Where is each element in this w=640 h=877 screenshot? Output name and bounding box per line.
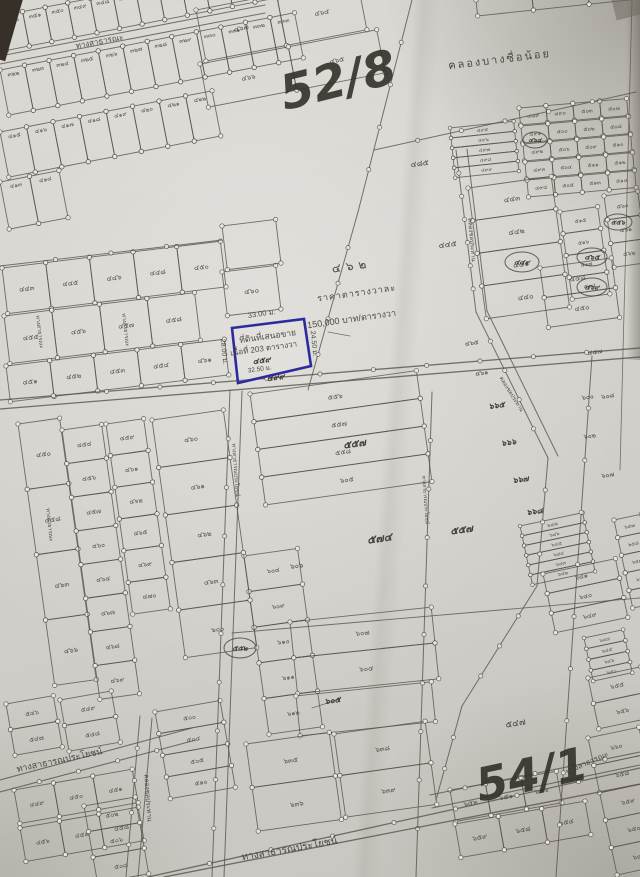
survey-node — [185, 13, 190, 18]
survey-node — [118, 740, 123, 745]
survey-node — [160, 753, 165, 758]
survey-node — [164, 244, 168, 248]
parcel-number: ๕๕๖ — [327, 393, 343, 402]
parcel-number: ๕๐๔ — [186, 735, 201, 744]
survey-node — [318, 372, 322, 376]
survey-node — [116, 759, 120, 763]
parcel-strip: ๔๕๕๔๕๖๔๕๗๔๕๘ — [2, 290, 203, 366]
survey-node — [542, 295, 547, 300]
survey-node — [488, 339, 492, 343]
survey-node — [123, 590, 128, 595]
survey-node — [88, 630, 93, 635]
parcel-cell — [222, 219, 281, 269]
survey-node — [579, 510, 583, 514]
survey-node — [60, 428, 65, 433]
survey-node — [570, 297, 575, 302]
survey-node — [337, 773, 342, 778]
survey-node — [468, 264, 472, 268]
parcel-number: ๖๓๕ — [283, 757, 298, 766]
survey-node — [518, 524, 522, 528]
survey-node — [251, 419, 256, 424]
survey-node — [586, 657, 590, 661]
survey-node — [615, 535, 620, 540]
survey-node — [27, 174, 32, 179]
parcel-number: ๔๕๓ — [109, 367, 125, 376]
parcel-number: ๓๓๐ — [204, 32, 217, 40]
survey-node — [17, 821, 22, 826]
survey-node — [176, 608, 181, 613]
survey-node — [628, 660, 632, 664]
survey-node — [250, 785, 255, 790]
map-line — [436, 706, 462, 800]
survey-node — [130, 811, 134, 815]
survey-node — [86, 159, 91, 164]
survey-node — [584, 647, 588, 651]
parcel-number: ๔๖๐ — [92, 542, 106, 551]
parcel-number: ๔๖๑ — [197, 357, 212, 366]
parcel-number: ๔๙๕ — [477, 127, 489, 134]
survey-node — [543, 488, 547, 492]
map-line — [164, 784, 640, 877]
parcel-number: ๔๔๒ — [508, 226, 525, 237]
survey-node — [327, 730, 332, 735]
survey-node — [532, 427, 536, 431]
survey-node — [450, 146, 454, 150]
survey-node — [531, 8, 536, 13]
parcel-number: ๔๕๖ — [71, 328, 87, 337]
survey-node — [523, 160, 528, 165]
parcel-number-hand: ๖๐๕ — [324, 695, 343, 706]
survey-node — [520, 534, 524, 538]
survey-node — [63, 852, 68, 857]
survey-node — [168, 796, 173, 801]
survey-node — [279, 307, 284, 312]
parcel-number: ๓๒๓ — [32, 66, 45, 74]
survey-node — [517, 169, 521, 173]
survey-node — [65, 215, 70, 220]
parcel-number: ๔๗๐ — [142, 592, 157, 601]
survey-node — [37, 780, 41, 784]
handwritten-sheet-number: 54/1 — [471, 736, 593, 812]
survey-node — [608, 241, 613, 246]
survey-node — [613, 285, 618, 290]
survey-node — [596, 726, 601, 731]
parcel-number: ๕๑๐ — [612, 142, 623, 149]
survey-node — [215, 729, 219, 733]
parcel-number: ๓๕๐ — [51, 7, 65, 16]
survey-node — [126, 580, 131, 585]
survey-node — [51, 693, 56, 698]
survey-node — [152, 709, 157, 714]
road-label: ทางสาธารณประโยชน์ — [15, 745, 103, 774]
parcel-number: ๔๖๒ — [197, 530, 213, 539]
parcel-strip: ๕๕๖๕๕๗๕๕๘๖๐๕ — [248, 368, 435, 507]
survey-node — [371, 368, 375, 372]
survey-node — [601, 135, 606, 140]
survey-node — [3, 701, 8, 706]
parcel-number: ๕๐๖ — [558, 147, 570, 154]
survey-node — [582, 799, 587, 804]
survey-node — [538, 266, 543, 271]
price-label-line2: 150,000 บาท/ตารางวา — [307, 308, 397, 330]
parcel-strip: ๔๔๓๔๔๕๔๔๖๔๔๘๔๕๐ — [0, 239, 228, 316]
survey-node — [595, 204, 600, 209]
survey-node — [223, 534, 227, 538]
survey-node — [457, 171, 461, 175]
parcel-number: ๔๖๕ — [133, 529, 148, 538]
parcel-number: ๔๕๐ — [36, 450, 52, 459]
parcel-number: ๔๖๑ — [475, 369, 489, 378]
survey-node — [471, 287, 475, 291]
parcel-number: ๖๐๘ — [601, 392, 615, 401]
parcel-number-hand: ๕๕๗ — [450, 523, 475, 537]
survey-node — [586, 406, 590, 410]
cadastral-map: ๓๕๒๓๕๑๓๕๐๓๔๙๓๔๘๓๔๗๓๔๖๓๔๕๓๔๔๓๔๓๓๔๒๓๔๑๓๔๐๓… — [0, 0, 640, 877]
dimension-label: 33.00 ม. — [247, 307, 276, 320]
parcel-number: ๓๒๗ — [130, 46, 144, 54]
parcel-number: ๔๖๔ — [314, 8, 330, 18]
survey-node — [57, 697, 62, 702]
parcel-number: ๓๒๖ — [105, 51, 118, 59]
survey-node — [50, 119, 55, 124]
survey-node — [475, 13, 480, 18]
survey-node — [248, 598, 253, 603]
survey-node — [113, 523, 118, 528]
survey-node — [90, 774, 95, 779]
survey-node — [129, 89, 134, 94]
survey-node — [567, 305, 572, 310]
parcel-number: ๖๔๕ — [601, 647, 613, 655]
parcel-number: ๔๖๐ — [244, 285, 260, 296]
survey-node — [214, 778, 218, 782]
survey-node — [57, 814, 62, 819]
parcel-number: ๔๑๖ — [35, 127, 48, 135]
survey-node — [587, 540, 591, 544]
parcel-number: ๖๔๙ — [582, 611, 597, 621]
survey-node — [578, 173, 583, 178]
parcel-number: ๖๐๗ — [601, 471, 615, 480]
survey-node — [267, 732, 272, 737]
parcel-number: ๖๔๖ — [549, 531, 560, 539]
survey-node — [515, 149, 519, 153]
parcel-number: ๔๔๕ — [62, 279, 79, 288]
survey-node — [572, 614, 576, 618]
survey-node — [183, 378, 188, 383]
survey-node — [77, 114, 82, 119]
parcel-number: ๔๔๓ — [503, 193, 521, 204]
parcel-number-hand: ๖๖๖ — [500, 437, 517, 448]
survey-node — [146, 871, 151, 876]
survey-node — [49, 39, 54, 44]
survey-node — [346, 246, 350, 250]
survey-node — [12, 753, 17, 758]
survey-node — [66, 481, 71, 486]
survey-node — [561, 231, 566, 236]
survey-node — [614, 872, 619, 877]
survey-node — [227, 70, 232, 75]
parcel-number: ๔๖๙ — [110, 676, 125, 685]
survey-node — [539, 806, 544, 811]
survey-node — [159, 543, 164, 548]
parcel-number: ๔๑๕ — [7, 131, 21, 140]
survey-node — [142, 846, 147, 851]
survey-node — [43, 5, 48, 10]
parcel-number: ๕๑๓ — [589, 180, 601, 187]
survey-node — [428, 760, 433, 765]
survey-node — [417, 778, 421, 782]
parcel-number: ๔๙๖ — [478, 137, 489, 144]
parcel-cell — [158, 0, 187, 20]
survey-node — [603, 818, 608, 823]
parcel-cell — [276, 0, 366, 45]
parcel-number: ๖๕๙ — [631, 558, 640, 566]
survey-node — [0, 129, 3, 134]
survey-node — [74, 529, 79, 534]
survey-node — [132, 658, 137, 663]
survey-node — [570, 101, 575, 106]
survey-node — [544, 103, 549, 108]
survey-node — [416, 138, 420, 142]
parcel-number: ๓๕๑ — [28, 11, 42, 20]
survey-node — [24, 124, 29, 129]
survey-node — [526, 195, 531, 200]
survey-node — [572, 119, 577, 124]
parcel-number: ๔๔๙ — [29, 799, 45, 808]
parcel-number: ๕๑๐ — [194, 778, 208, 787]
survey-node — [636, 725, 640, 730]
parcel-strip: ๖๔๑๖๔๐๖๔๙ — [540, 556, 630, 635]
survey-node — [137, 691, 142, 696]
parcel-number: ๔๖๑ — [190, 483, 205, 492]
survey-node — [183, 655, 188, 660]
parcel-number: ๔๖๗ — [101, 609, 116, 618]
parcel-strip: ๔๕๔๔๕๖๔๕๗๔๖๐๔๖๔๔๖๗๔๖๘๔๖๙ — [60, 422, 142, 702]
survey-node — [420, 681, 424, 685]
survey-node — [57, 819, 62, 824]
parcel-number: ๔๖๑ — [125, 465, 139, 474]
survey-node — [33, 169, 38, 174]
survey-node — [218, 24, 223, 29]
survey-node — [291, 655, 296, 660]
parcel-strip: ๖๓๕๖๓๖ — [244, 730, 344, 834]
survey-node — [626, 588, 631, 593]
survey-node — [609, 845, 614, 850]
handwritten-sheet-number: 52/8 — [274, 39, 402, 122]
survey-node — [91, 353, 96, 358]
survey-node — [419, 729, 423, 733]
map-line — [476, 312, 548, 458]
canal-label: คลองบางซื่อน้อย — [447, 45, 551, 72]
survey-node — [433, 641, 438, 646]
parcel-strip: ๖๓๘๖๓๙ — [332, 719, 440, 820]
survey-node — [545, 591, 550, 596]
survey-node — [422, 424, 427, 429]
survey-node — [53, 257, 57, 261]
parcel-number: ๔๙๒ — [531, 149, 544, 156]
survey-node — [27, 43, 32, 48]
parcel-strip: ๔๕๙๔๖๑๔๖๒๔๖๕๔๖๙๔๗๐ — [104, 416, 173, 616]
parcel-strip: ๖๕๙๖๕๘๖๕๔ — [452, 799, 593, 861]
map-line — [487, 311, 558, 456]
parcel-number: ๔๒๑ — [167, 101, 180, 109]
survey-node — [155, 748, 159, 752]
parcel-number: ๔๖๔ — [96, 575, 111, 584]
survey-node — [162, 17, 167, 22]
parcel-strip: ๕๔๖๕๔๗ — [3, 693, 64, 758]
parcel-cell — [476, 0, 533, 16]
parcel-number: ๔๔๖ — [106, 274, 122, 283]
survey-node — [230, 4, 235, 9]
survey-node — [47, 58, 52, 63]
survey-node — [443, 767, 447, 771]
parcel-number: ๕๐๗ — [608, 106, 620, 113]
survey-node — [256, 829, 261, 834]
survey-node — [47, 358, 52, 363]
survey-node — [150, 480, 155, 485]
survey-node — [553, 630, 558, 635]
survey-node — [183, 93, 188, 98]
parcel-number: ๔๕๗ — [587, 348, 603, 357]
map-line — [328, 332, 350, 336]
parcel-number: ๖๕๙ — [472, 833, 488, 842]
survey-node — [90, 855, 95, 860]
survey-node — [429, 479, 434, 484]
survey-node — [574, 137, 579, 142]
parcel-number: ๖๐๗ — [355, 629, 370, 637]
survey-node — [588, 832, 593, 837]
parcel-number: ๔๕๐ — [574, 304, 590, 313]
survey-node — [617, 315, 622, 320]
survey-node — [145, 39, 150, 44]
survey-node — [117, 26, 122, 31]
parcel-strip: ๔๕๑๔๕๒๔๕๓๔๕๔๔๖๑ — [4, 337, 232, 404]
survey-node — [460, 194, 464, 198]
survey-node — [6, 113, 11, 118]
survey-node — [279, 261, 284, 266]
survey-node — [562, 272, 567, 277]
parcel-number: ๔๙๔ — [535, 185, 548, 192]
parcel-number: ๓๒๒ — [7, 70, 20, 78]
survey-node — [113, 714, 118, 719]
survey-node — [86, 829, 91, 834]
parcel-number: ๕๔๖ — [25, 709, 40, 718]
survey-node — [617, 576, 622, 581]
survey-node — [462, 217, 466, 221]
survey-node — [547, 109, 551, 113]
paper-edge-shadow — [626, 0, 640, 360]
parcel-number: ๔๕๐ — [194, 263, 210, 272]
survey-node — [516, 159, 520, 163]
survey-node — [94, 677, 99, 682]
parcel-number: ๔๑๘ — [87, 117, 101, 125]
survey-node — [150, 418, 155, 423]
survey-node — [621, 627, 625, 631]
survey-node — [587, 2, 592, 7]
survey-node — [225, 313, 230, 318]
parcel-number: ๕๔๗ — [505, 716, 527, 729]
survey-node — [229, 763, 234, 768]
survey-node — [568, 667, 572, 671]
survey-node — [630, 605, 635, 610]
survey-node — [343, 815, 348, 820]
survey-node — [288, 620, 293, 625]
survey-node — [62, 723, 67, 728]
map-line — [0, 13, 265, 64]
survey-node — [108, 453, 113, 458]
parcel-number: ๕๑๑ — [587, 162, 599, 169]
survey-node — [254, 645, 259, 650]
survey-node — [449, 136, 453, 140]
survey-node — [7, 227, 12, 232]
survey-node — [75, 546, 80, 551]
survey-node — [81, 803, 86, 808]
parcel-number: ๓๓๒ — [252, 23, 265, 31]
survey-node — [234, 503, 239, 508]
survey-node — [55, 103, 60, 108]
parcel-number: ๔๕๖ — [82, 474, 97, 483]
survey-node — [425, 535, 429, 539]
survey-node — [585, 530, 589, 534]
parcel-number: ๖๑๑ — [282, 674, 295, 683]
survey-node — [553, 207, 558, 212]
survey-node — [93, 663, 98, 668]
parcel-number: ๖๕๕ — [610, 681, 625, 691]
survey-node — [593, 569, 597, 573]
parcel-number: ๕๐๒ — [583, 126, 595, 133]
survey-node — [72, 35, 77, 40]
survey-node — [576, 562, 580, 566]
parcel-number: ๕๑๖ — [578, 239, 590, 247]
parcel-number: ๔๖๘ — [105, 643, 120, 652]
survey-node — [531, 355, 535, 359]
parcel-number: ๕๐๙ — [585, 144, 597, 151]
parcel-number: ๕๕๗ — [331, 420, 348, 429]
survey-node — [76, 769, 80, 773]
road-label: ทางสาธารณะ — [34, 315, 45, 349]
parcel-number: ๓๔๘ — [96, 0, 111, 7]
survey-node — [517, 106, 522, 111]
parcel-number: ๖๐๖ — [290, 562, 305, 571]
survey-node — [112, 154, 117, 159]
survey-node — [20, 9, 25, 14]
survey-node — [221, 583, 225, 587]
survey-node — [109, 489, 114, 494]
survey-node — [0, 67, 3, 72]
survey-node — [36, 221, 41, 226]
parcel-number: ๔๕๗ — [86, 508, 102, 517]
survey-node — [225, 267, 230, 272]
survey-node — [207, 8, 212, 13]
survey-node — [34, 552, 39, 557]
survey-node — [292, 10, 297, 15]
survey-node — [320, 724, 325, 729]
survey-node — [598, 226, 603, 231]
survey-node — [130, 104, 135, 109]
survey-node — [630, 670, 634, 674]
survey-node — [130, 612, 135, 617]
survey-node — [139, 383, 144, 388]
survey-node — [16, 422, 21, 427]
parcel-number: ๔๕๔ — [153, 362, 170, 371]
survey-node — [459, 129, 463, 133]
survey-node — [169, 34, 174, 39]
parcel-number: ๔๔๓ — [19, 285, 35, 294]
survey-node — [513, 129, 517, 133]
parcel-number: ๕๐๐ — [556, 129, 567, 136]
parcel-number: ๔๕๔ — [77, 441, 93, 450]
survey-node — [582, 636, 586, 640]
parcel-number-large: ๔๖๒ — [331, 256, 372, 275]
